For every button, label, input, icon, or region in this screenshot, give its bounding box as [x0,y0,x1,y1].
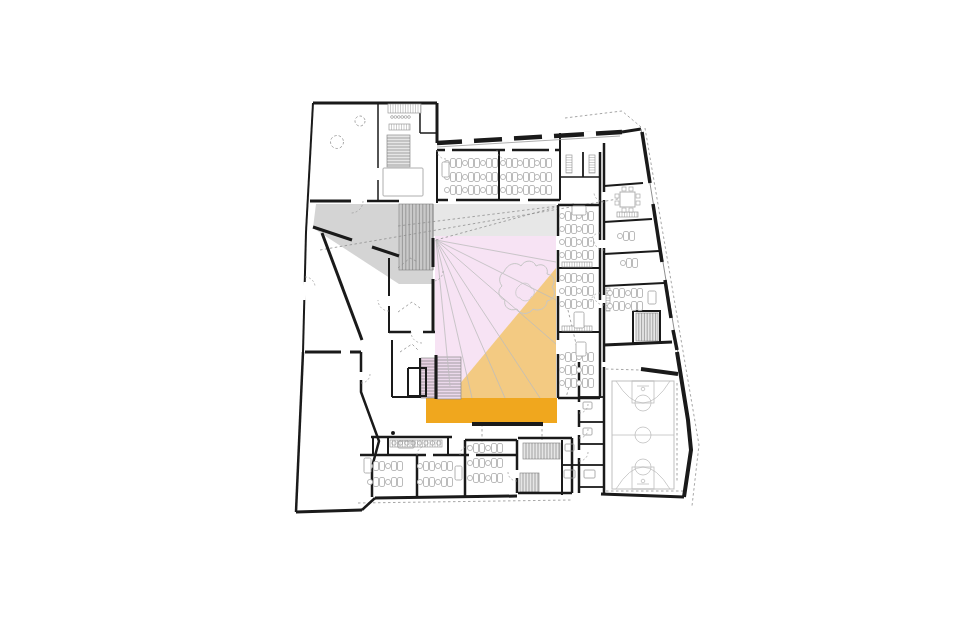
desk-46-seat-b [480,444,485,453]
desk-17-seat-a [541,186,546,195]
desk-56-seat-b [620,302,625,311]
wall-south-court [601,494,684,497]
desk-8-chair [480,187,485,192]
desk-33-seat-b [589,353,594,362]
desk-38-seat-b [380,462,385,471]
desk-36-seat-a [566,379,571,388]
desk-47-seat-b [498,444,503,453]
wall-east-b3 [665,280,671,318]
court-hoop-bottom [641,479,645,483]
meeting-chair-0 [622,187,626,191]
desk-45-seat-a [442,478,447,487]
desk-10-seat-a [524,159,529,168]
desk-11-seat-b [547,159,552,168]
desk-7-seat-a [469,186,474,195]
desk-14-chair [534,174,539,179]
desk-55-chair [625,290,630,295]
wall-hall-right [361,352,379,497]
desk-23-chair [576,239,581,244]
desk-27-seat-b [589,274,594,283]
desk-57-seat-b [638,302,643,311]
desk-11-seat-a [541,159,546,168]
fixture-strip-3 [584,470,595,478]
fixture-small-1 [564,470,575,478]
desk-55-seat-b [638,289,643,298]
desk-46-seat-a [474,444,479,453]
desk-37-chair [576,380,581,385]
desk-48-seat-a [474,459,479,468]
desk-6-chair [444,187,449,192]
desk-27-chair [576,275,581,280]
desk-53-seat-a [627,259,632,268]
desk-41-chair [385,479,390,484]
site-line-ne [565,111,641,127]
desk-29-seat-b [589,287,594,296]
door-swing-3 [411,332,422,343]
desk-21-seat-a [583,225,588,234]
desk-15-seat-b [513,186,518,195]
gap-win-4 [584,134,596,135]
desk-31-seat-a [583,300,588,309]
wall-wedge-d3 [604,251,659,254]
plant-sketch-2 [398,302,420,312]
desk-27-seat-a [583,274,588,283]
desk-9-seat-a [507,159,512,168]
desk-39-seat-a [392,462,397,471]
desk-37-seat-b [589,379,594,388]
desk-43-chair [435,463,440,468]
court-3pt-top [616,381,670,403]
desk-40-seat-a [374,478,379,487]
desk-29-chair [576,288,581,293]
teacher-desk-6 [648,291,656,304]
desk-7-chair [462,187,467,192]
desk-9-seat-b [513,159,518,168]
desk-44-seat-a [424,478,429,487]
column-dashed-1 [331,136,344,149]
teacher-desk-2 [574,312,584,328]
desk-21-seat-b [589,225,594,234]
desk-4-seat-a [469,173,474,182]
wall-wedge-d1 [604,183,643,186]
desk-35-seat-b [589,366,594,375]
desk-51-seat-b [498,474,503,483]
meeting-chair-2 [622,208,626,212]
site-line-south [358,500,572,503]
column-dot-0 [391,431,395,435]
desk-41-seat-a [392,478,397,487]
desk-52-seat-b [630,232,635,241]
desk-54-chair [607,290,612,295]
desk-47-chair [485,445,490,450]
desk-49-seat-b [498,459,503,468]
desk-36-chair [559,380,564,385]
desk-49-chair [485,460,490,465]
meeting-chair-5 [615,201,619,205]
desk-22-chair [559,239,564,244]
stool-row-1-3 [401,116,404,119]
desk-1-chair [462,160,467,165]
desk-38-seat-a [374,462,379,471]
desk-28-chair [559,288,564,293]
teacher-desk-5 [455,466,462,480]
teacher-desk-0 [442,162,449,177]
desk-26-seat-b [572,274,577,283]
desk-52-seat-a [624,232,629,241]
desk-34-chair [559,367,564,372]
desk-22-seat-b [572,238,577,247]
desk-53-chair [620,260,625,265]
sideboard-wedge [617,212,638,217]
stool-row-1-5 [408,116,411,119]
desk-3-seat-a [451,173,456,182]
nw-stair-landing [383,168,423,196]
desk-14-seat-a [541,173,546,182]
desk-24-seat-b [572,251,577,260]
desk-39-seat-b [398,462,403,471]
desk-40-seat-b [380,478,385,487]
desk-32-chair [559,354,564,359]
wall-wedge-bottom [604,342,672,345]
desk-48-chair [467,460,472,465]
desk-45-chair [435,479,440,484]
desk-54-seat-a [614,289,619,298]
meeting-chair-4 [615,194,619,198]
desk-34-seat-b [572,366,577,375]
desk-4-seat-b [475,173,480,182]
door-swing-13 [417,446,426,455]
wall-west-hall [296,352,303,512]
desk-32-seat-a [566,353,571,362]
desk-2-seat-b [493,159,498,168]
stool-row-1-0 [391,116,394,119]
desk-50-seat-b [480,474,485,483]
desk-42-chair [417,463,422,468]
wall-ne-corner [622,129,641,132]
fixture-strip-1 [583,402,592,409]
desk-11-chair [534,160,539,165]
gap-win-3 [542,136,554,137]
desk-21-chair [576,226,581,231]
desk-55-seat-a [632,289,637,298]
desk-17-chair [534,187,539,192]
desk-44-chair [417,479,422,484]
desk-51-seat-a [492,474,497,483]
desk-13-chair [517,174,522,179]
desk-9-chair [500,160,505,165]
court-room-dash-top [606,369,640,370]
desk-42-seat-a [424,462,429,471]
desk-18-chair [559,213,564,218]
desk-2-chair [480,160,485,165]
desk-52-chair [617,233,622,238]
desk-29-seat-a [583,287,588,296]
desk-19-seat-b [589,212,594,221]
desk-30-seat-a [566,300,571,309]
desk-45-seat-b [448,478,453,487]
desk-37-seat-a [583,379,588,388]
desk-49-seat-a [492,459,497,468]
desk-10-chair [517,160,522,165]
meeting-chair-7 [636,201,640,205]
desk-23-seat-a [583,238,588,247]
desk-50-chair [467,475,472,480]
desk-57-seat-a [632,302,637,311]
gap-win-2 [502,138,514,139]
desk-13-seat-a [524,173,529,182]
desk-20-seat-b [572,225,577,234]
desk-54-seat-b [620,289,625,298]
gap-win-1 [462,141,474,142]
desk-35-seat-a [583,366,588,375]
wall-east-low [677,352,691,497]
wall-sw-chamfer [362,498,375,510]
desk-40-chair [367,479,372,484]
zone-stage [426,398,557,423]
desk-20-seat-a [566,225,571,234]
court-3pt-bottom [616,467,670,489]
desk-8-seat-b [493,186,498,195]
desk-42-seat-b [430,462,435,471]
desk-7-seat-b [475,186,480,195]
wall-wedge-d4 [604,283,664,286]
desk-13-seat-b [530,173,535,182]
desk-43-seat-a [442,462,447,471]
desk-25-chair [576,252,581,257]
desk-47-seat-a [492,444,497,453]
desk-15-seat-a [507,186,512,195]
desk-20-chair [559,226,564,231]
desk-0-seat-a [451,159,456,168]
plant-sketch-3 [400,344,418,352]
stool-row-1-1 [394,116,397,119]
gap-west [304,282,305,300]
desk-26-chair [559,275,564,280]
desk-17-seat-b [547,186,552,195]
meeting-table [620,192,635,207]
desk-26-seat-a [566,274,571,283]
fixture-strip-2 [583,428,592,435]
teacher-desk-4 [364,458,371,473]
wall-west-nw [306,103,313,232]
meeting-chair-3 [629,208,633,212]
stair-se-upper [523,443,560,459]
desk-53-seat-b [633,259,638,268]
shelf-nw-2 [389,124,410,130]
door-swing-2 [378,300,389,311]
desk-15-chair [500,187,505,192]
desk-10-seat-b [530,159,535,168]
desk-12-chair [500,174,505,179]
desk-51-chair [485,475,490,480]
wall-east-b2 [653,204,662,262]
floor-plan-svg [0,0,960,639]
desk-57-chair [625,303,630,308]
desk-8-seat-a [487,186,492,195]
desk-48-seat-b [480,459,485,468]
desk-16-seat-b [530,186,535,195]
desk-5-seat-a [487,173,492,182]
column-dashed-0 [355,116,365,126]
teacher-desk-1 [572,206,586,215]
desk-12-seat-b [513,173,518,182]
desk-36-seat-b [572,379,577,388]
teacher-desk-3 [576,342,586,356]
door-swing-10 [437,150,446,159]
desk-14-seat-b [547,173,552,182]
desk-22-seat-a [566,238,571,247]
desk-0-seat-b [457,159,462,168]
wall-east-b4 [673,330,677,350]
desk-28-seat-a [566,287,571,296]
desk-35-chair [576,367,581,372]
desk-4-chair [462,174,467,179]
desk-1-seat-a [469,159,474,168]
desk-16-chair [517,187,522,192]
desk-6-seat-a [451,186,456,195]
desk-50-seat-a [474,474,479,483]
desk-31-chair [576,301,581,306]
desk-39-chair [385,463,390,468]
desk-5-seat-b [493,173,498,182]
desk-1-seat-b [475,159,480,168]
stool-row-1-2 [397,116,400,119]
wall-court-top [641,369,678,374]
desk-12-seat-a [507,173,512,182]
desk-25-seat-a [583,251,588,260]
desk-56-seat-a [614,302,619,311]
wall-wedge-d2 [604,219,652,222]
floor-plan [0,0,960,639]
desk-24-seat-a [566,251,571,260]
desk-41-seat-b [398,478,403,487]
stool-row-1-4 [404,116,407,119]
desk-18-seat-a [566,212,571,221]
desk-43-seat-b [448,462,453,471]
desk-28-seat-b [572,287,577,296]
wall-south-hall [296,510,362,512]
desk-56-chair [607,303,612,308]
desk-44-seat-b [430,478,435,487]
desk-30-seat-b [572,300,577,309]
wall-south-rooms [375,496,517,498]
meeting-chair-6 [636,194,640,198]
desk-3-seat-b [457,173,462,182]
desk-5-chair [480,174,485,179]
meeting-chair-1 [629,187,633,191]
wall-east-b1 [642,132,650,183]
desk-24-chair [559,252,564,257]
desk-30-chair [559,301,564,306]
desk-2-seat-a [487,159,492,168]
desk-6-seat-b [457,186,462,195]
court-hoop-top [641,387,645,391]
desk-16-seat-a [524,186,529,195]
desk-25-seat-b [589,251,594,260]
desk-34-seat-a [566,366,571,375]
